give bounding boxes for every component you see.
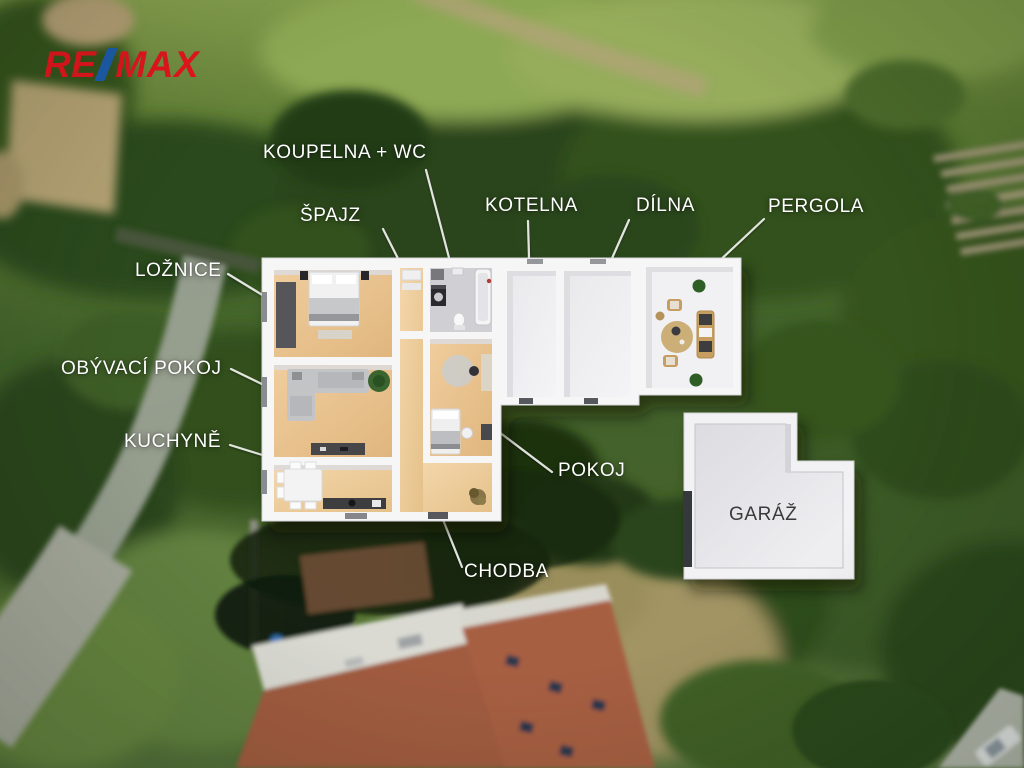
room-label-pergola: PERGOLA bbox=[768, 197, 864, 216]
potted-plant bbox=[690, 374, 703, 387]
toilet bbox=[454, 313, 465, 327]
pantry-shelves bbox=[402, 270, 421, 290]
sink bbox=[452, 268, 463, 275]
potted-plant bbox=[693, 280, 706, 293]
kotelna-floor bbox=[507, 271, 556, 397]
remax-logo-max: MAX bbox=[115, 46, 199, 83]
corridor-floor bbox=[400, 268, 423, 512]
room-label-garaz: GARÁŽ bbox=[729, 505, 797, 524]
garage-door bbox=[683, 491, 692, 567]
desk-chair bbox=[469, 366, 479, 376]
room-label-chodba: CHODBA bbox=[464, 562, 549, 581]
room-label-obyvaci-pokoj: OBÝVACÍ POKOJ bbox=[61, 359, 222, 378]
rattan-rug bbox=[661, 321, 693, 353]
wardrobe bbox=[276, 282, 296, 348]
media-console bbox=[311, 443, 365, 455]
room-label-kotelna: KOTELNA bbox=[485, 196, 578, 215]
desk bbox=[481, 354, 492, 391]
aerial-floorplan-photo: KOUPELNA + WC ŠPAJZ KOTELNA DÍLNA PERGOL… bbox=[0, 0, 1024, 768]
room-label-pokoj: POKOJ bbox=[558, 461, 625, 480]
scene-canvas bbox=[0, 0, 1024, 768]
room-label-kuchyne: KUCHYNĚ bbox=[124, 432, 221, 451]
room-label-spajz: ŠPAJZ bbox=[300, 206, 361, 225]
dilna-floor bbox=[564, 271, 631, 397]
remax-logo-re: RE bbox=[44, 46, 96, 83]
remax-logo: RE MAX bbox=[44, 46, 199, 83]
room-label-koupelna-wc: KOUPELNA + WC bbox=[263, 143, 427, 162]
dining-table bbox=[284, 469, 322, 501]
room-label-loznice: LOŽNICE bbox=[135, 261, 222, 280]
floor-plan bbox=[262, 258, 741, 521]
room-label-dilna: DÍLNA bbox=[636, 196, 695, 215]
